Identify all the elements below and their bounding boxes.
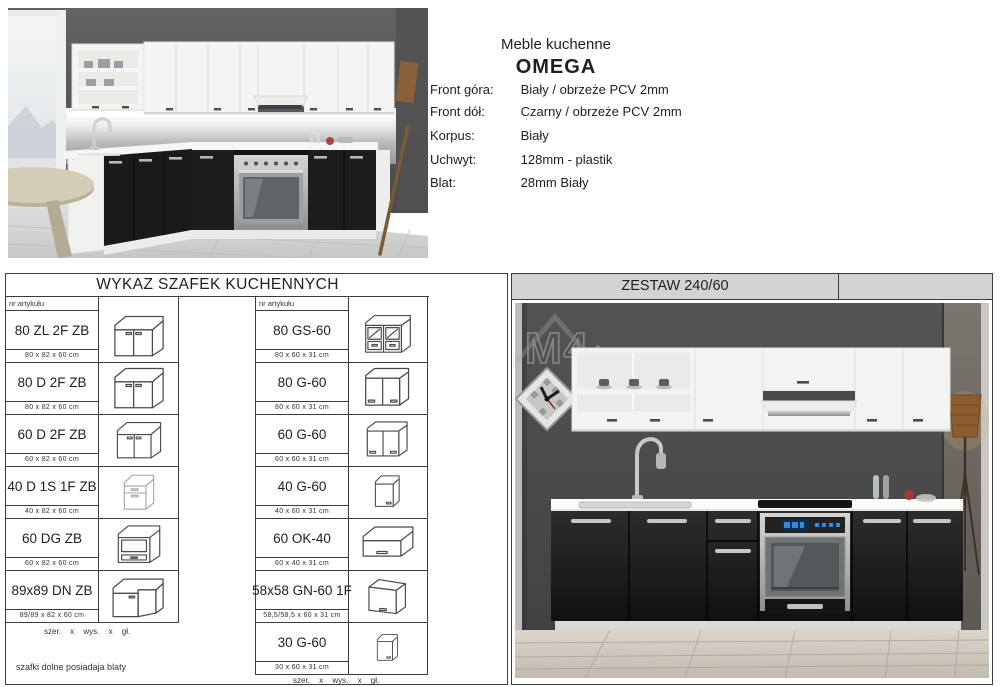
table-row: 89x89 DN ZB 89/89 x 82 x 60 cm — [6, 571, 178, 623]
cabinet-code: 80 GS-60 — [256, 311, 348, 349]
sink-icon — [579, 502, 691, 508]
column-header-article: nr artykułu — [6, 297, 99, 311]
open-shelf-cabinet — [72, 44, 144, 110]
cabinet-dims: 40 x 60 x 31 cm — [256, 505, 348, 518]
cabinet-code: 60 D 2F ZB — [6, 415, 98, 453]
cabinet-code: 30 G-60 — [256, 623, 348, 661]
cooker-hood-icon — [254, 96, 308, 114]
cabinet-dims: 60 x 82 x 60 cm — [6, 453, 98, 466]
worktop-front — [192, 142, 378, 150]
table-row: 80 D 2F ZB 80 x 82 x 60 cm — [6, 363, 178, 415]
led-light-strip — [66, 111, 396, 141]
cabinet-code: 80 ZL 2F ZB — [6, 311, 98, 349]
stove-icon — [234, 150, 308, 234]
cabinet-table-left: nr artykułu 80 ZL 2F ZB 80 x 82 x 60 cm … — [6, 297, 179, 623]
wall-cabinets — [72, 42, 394, 114]
base-2door-cabinet-icon — [106, 364, 172, 414]
cabinet-dims: 80 x 82 x 60 cm — [6, 401, 98, 414]
base-sink-2door-cabinet-icon — [106, 312, 172, 362]
wall-flap-cabinet-icon — [356, 521, 420, 569]
cabinet-dims: 60 x 60 x 31 cm — [256, 453, 348, 466]
set-title: ZESTAW 240/60 — [512, 274, 839, 299]
table-row: 40 D 1S 1F ZB 40 x 82 x 60 cm — [6, 467, 178, 519]
dims-legend-right: szer. x wys. x gł. — [293, 676, 379, 685]
base-2door-cabinet-icon — [111, 417, 167, 465]
cabinet-dims: 58,5/58,5 x 60 x 31 cm — [256, 609, 348, 622]
table-row: 30 G-60 30 x 60 x 31 cm — [256, 623, 427, 675]
wall-2door-cabinet-icon — [355, 364, 421, 414]
cabinet-list-section: WYKAZ SZAFEK KUCHENNYCH nr artykułu 80 Z… — [5, 273, 508, 685]
plinth — [555, 621, 961, 630]
floor — [515, 630, 989, 678]
cabinet-dims: 80 x 60 x 31 cm — [256, 349, 348, 362]
wall-1door-narrow-cabinet-icon — [366, 625, 410, 673]
cabinet-code: 80 D 2F ZB — [6, 363, 98, 401]
spec-worktop: Blat: 28mm Biały — [430, 175, 830, 192]
cabinet-dims: 40 x 82 x 60 cm — [6, 505, 98, 518]
spec-value: Biały — [521, 128, 549, 143]
table-row: 40 G-60 40 x 60 x 31 cm — [256, 467, 427, 519]
spec-front-top: Front góra: Biały / obrzeże PCV 2mm — [430, 82, 830, 99]
cabinet-code: 60 DG ZB — [6, 519, 98, 557]
catalog-page: Meble kuchenne OMEGA Front góra: Biały /… — [0, 0, 1000, 687]
base-corner-cabinet-icon — [105, 572, 173, 622]
wall-1door-cabinet-icon — [362, 469, 414, 517]
base-oven-housing-cabinet-icon — [110, 521, 168, 569]
spec-label: Front dół: — [430, 104, 517, 119]
collection-name: OMEGA — [425, 56, 687, 79]
cabinet-dims: 30 x 60 x 31 cm — [256, 661, 348, 674]
spec-label: Korpus: — [430, 128, 517, 143]
cabinet-code: 60 G-60 — [256, 415, 348, 453]
base-drawer-door-cabinet-icon — [112, 469, 166, 517]
cooktop-icon — [758, 500, 852, 508]
cabinet-dims: 60 x 40 x 31 cm — [256, 557, 348, 570]
spec-label: Blat: — [430, 175, 517, 190]
sink-icon — [78, 153, 120, 156]
set-panel: ZESTAW 240/60 — [511, 273, 993, 685]
cabinet-dims: 60 x 82 x 60 cm — [6, 557, 98, 570]
column-header-article: nr artykułu — [256, 297, 349, 311]
table-row: 60 OK-40 60 x 40 x 31 cm — [256, 519, 427, 571]
cabinet-dims: 80 x 82 x 60 cm — [6, 349, 98, 362]
kitchen-photo-corner — [8, 8, 428, 258]
cabinet-code: 80 G-60 — [256, 363, 348, 401]
set-header-empty-cell — [839, 274, 992, 299]
cabinet-code: 60 OK-40 — [256, 519, 348, 557]
base-cabinets-note: szafki dolne posiadaja blaty — [16, 662, 126, 672]
spec-value: 28mm Biały — [521, 175, 589, 190]
spec-label: Uchwyt: — [430, 152, 517, 167]
table-row: 80 GS-60 80 x 60 x 31 cm — [256, 311, 427, 363]
base-cabinets — [551, 511, 963, 621]
table-row: 60 DG ZB 60 x 82 x 60 cm — [6, 519, 178, 571]
spec-value: Biały / obrzeże PCV 2mm — [521, 82, 669, 97]
spec-value: Czarny / obrzeże PCV 2mm — [521, 104, 682, 119]
spec-handle: Uchwyt: 128mm - plastik — [430, 152, 830, 169]
table-row: 80 ZL 2F ZB 80 x 82 x 60 cm — [6, 311, 178, 363]
spec-carcass: Korpus: Biały — [430, 128, 830, 145]
oven-icon — [760, 513, 850, 613]
wall-2door-cabinet-icon — [359, 417, 417, 465]
cabinet-code: 40 D 1S 1F ZB — [6, 467, 98, 505]
set-panel-header: ZESTAW 240/60 — [512, 274, 992, 300]
cabinet-dims: 89/89 x 82 x 60 cm — [6, 609, 98, 622]
dims-legend-left: szer. x wys. x gł. — [44, 627, 130, 636]
wall-cabinets — [572, 348, 950, 431]
spec-front-bottom: Front dół: Czarny / obrzeże PCV 2mm — [430, 104, 830, 121]
cabinet-list-title: WYKAZ SZAFEK KUCHENNYCH — [6, 274, 429, 297]
table-row: 58x58 GN-60 1F 58,5/58,5 x 60 x 31 cm — [256, 571, 427, 623]
table-row: 80 G-60 80 x 60 x 31 cm — [256, 363, 427, 415]
wall-corner-cabinet-icon — [359, 572, 417, 622]
cabinet-dims: 80 x 60 x 31 cm — [256, 401, 348, 414]
cabinet-table-right: nr artykułu 80 GS-60 80 x 60 x 31 cm 80 … — [255, 297, 428, 675]
cabinet-code: 40 G-60 — [256, 467, 348, 505]
spec-value: 128mm - plastik — [521, 152, 613, 167]
wall-glass-cabinet-icon — [355, 312, 421, 362]
cabinet-code: 89x89 DN ZB — [6, 571, 98, 609]
table-row: 60 D 2F ZB 60 x 82 x 60 cm — [6, 415, 178, 467]
collection-subtitle: Meble kuchenne — [425, 36, 687, 53]
collection-title: Meble kuchenne OMEGA — [425, 36, 687, 79]
kitchen-photo-line: M4 .pl — [515, 303, 989, 678]
spec-label: Front góra: — [430, 82, 517, 97]
cabinet-code: 58x58 GN-60 1F — [256, 571, 348, 609]
table-row: 60 G-60 60 x 60 x 31 cm — [256, 415, 427, 467]
cups-on-shelf — [596, 379, 672, 389]
